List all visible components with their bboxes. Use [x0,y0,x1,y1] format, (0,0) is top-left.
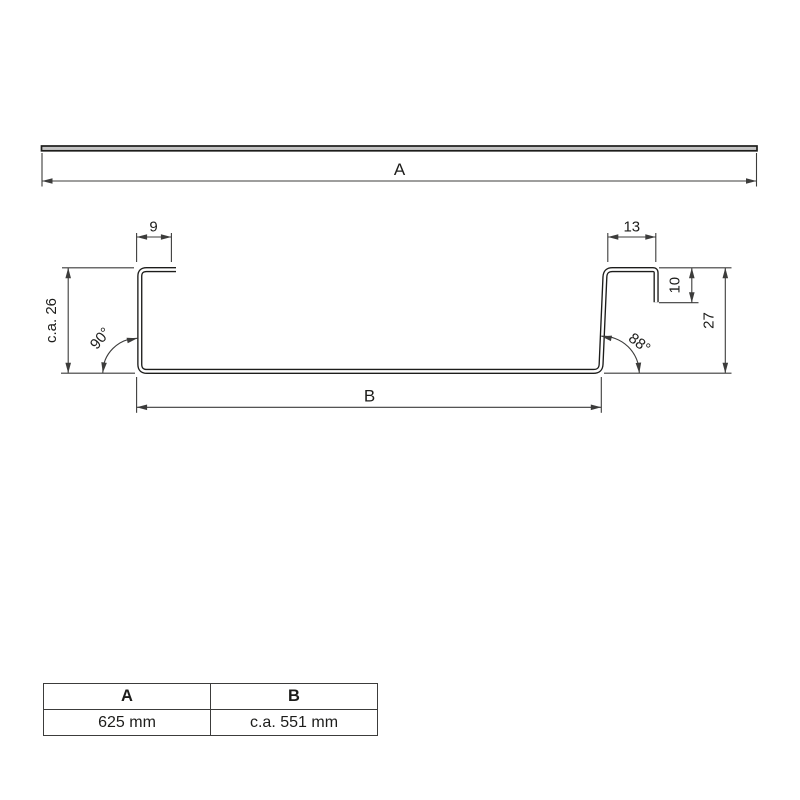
profile-drawing: A 9 13 [0,0,800,800]
profile-outline [140,270,656,372]
dimension-right-lip: 10 [667,268,695,303]
table-value-a: 625 mm [44,710,211,736]
arrow-left-icon [608,234,619,240]
arrow-up-icon [689,268,695,279]
arrow-right-icon [645,234,656,240]
angle-right-88: 88° [601,330,654,374]
arrow-left-icon [137,234,148,240]
flat-strip [42,146,758,151]
dimension-right-flange: 13 [608,219,656,263]
dimension-b-label: B [364,387,375,406]
angle-88-label: 88° [625,330,653,357]
arrow-right-icon [161,234,172,240]
dimension-13-label: 13 [623,219,640,236]
arrow-right-icon [127,336,138,344]
dimension-table: A B 625 mm c.a. 551 mm [43,683,378,736]
dimension-a-label: A [394,160,406,179]
arrow-down-icon [100,362,107,373]
dimension-a: A [42,153,757,187]
arrow-down-icon [65,363,71,374]
table-value-b: c.a. 551 mm [211,710,378,736]
arrow-down-icon [689,292,695,303]
dimension-10-label: 10 [667,277,684,294]
arrow-right-icon [591,405,602,411]
arrow-left-icon [42,178,53,184]
arrow-down-icon [636,362,642,373]
table-value-row: 625 mm c.a. 551 mm [44,710,378,736]
dimension-left-flange: 9 [137,219,172,263]
table-header-row: A B [44,684,378,710]
dimension-right-height: 27 [701,268,729,373]
arrow-left-icon [137,405,148,411]
arrow-up-icon [65,268,71,279]
arrow-up-icon [723,268,729,279]
arrow-down-icon [723,363,729,374]
dimension-left-height: c.a. 26 [43,268,135,373]
technical-drawing-page: A 9 13 [0,0,800,800]
dimension-ca26-label: c.a. 26 [43,298,60,343]
dimension-27-label: 27 [701,312,718,329]
dimension-b: B [137,377,602,413]
table-header-a: A [44,684,211,710]
angle-90-label: 90° [87,324,115,352]
arrow-right-icon [746,178,757,184]
angle-left-90: 90° [87,324,138,373]
dimension-9-label: 9 [149,219,157,236]
table-header-b: B [211,684,378,710]
